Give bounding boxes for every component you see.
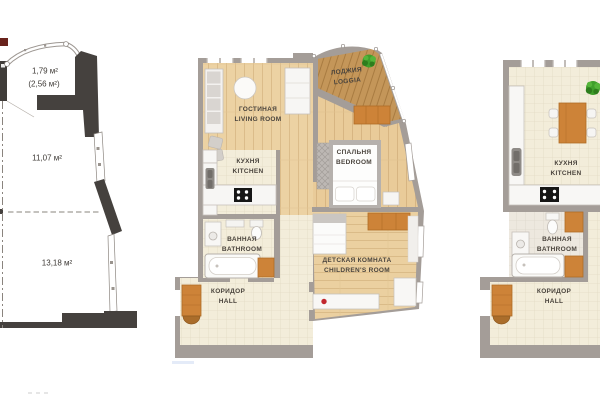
room-label-kitchen: КУХНЯ KITCHEN	[551, 159, 582, 179]
room-label-bedroom-ru: СПАЛЬНЯ	[336, 148, 372, 158]
room-label-children-en: CHILDREN'S ROOM	[322, 266, 391, 276]
room-label-children: ДЕТСКАЯ КОМНАТА CHILDREN'S ROOM	[322, 256, 391, 276]
room-label-kitchen-ru: КУХНЯ	[233, 157, 264, 167]
wall-bottom-left	[0, 322, 62, 328]
area-label-balcony-total: (2,56 м²)	[28, 80, 59, 89]
room-label-loggia: ЛОДЖИЯ LOGGIA	[330, 65, 363, 88]
kitchen-sink	[512, 148, 522, 176]
wall-chunk	[37, 51, 99, 137]
toilet	[546, 213, 559, 234]
bath-cabinet	[258, 258, 274, 277]
studio-plan-drawing	[480, 40, 600, 360]
kitchen-sink	[206, 168, 215, 189]
room-label-hall-en: HALL	[211, 297, 245, 307]
room-label-children-ru: ДЕТСКАЯ КОМНАТА	[322, 256, 391, 266]
children-desk	[313, 294, 379, 309]
bedroom-rug	[317, 143, 330, 189]
two-room-plan-drawing	[172, 40, 430, 360]
room-label-kitchen: КУХНЯ KITCHEN	[233, 157, 264, 177]
watermark-fragment	[28, 392, 52, 394]
room-label-living-en: LIVING ROOM	[235, 115, 282, 125]
room-label-hall-en: HALL	[537, 297, 571, 307]
room-label-kitchen-en: KITCHEN	[551, 169, 582, 179]
wall-bottom-right	[104, 311, 137, 328]
room-label-bathroom-en: BATHROOM	[222, 245, 262, 255]
room-label-bathroom: ВАННАЯ BATHROOM	[222, 235, 262, 255]
dining-table	[559, 103, 586, 143]
room-label-living-ru: ГОСТИНАЯ	[235, 105, 282, 115]
children-dresser	[394, 278, 416, 306]
studio-plan: КУХНЯ KITCHEN ВАННАЯ BATHROOM КОРИДОР HA…	[480, 40, 600, 360]
hall-wardrobe	[492, 285, 512, 324]
washing-machine	[205, 222, 221, 246]
room-label-bathroom: ВАННАЯ BATHROOM	[537, 235, 577, 255]
wall-pier-top	[293, 53, 313, 59]
room-label-hall: КОРИДОР HALL	[537, 287, 571, 307]
bath-cabinet	[565, 256, 583, 277]
cooktop	[540, 187, 559, 202]
room-label-bathroom-en: BATHROOM	[537, 245, 577, 255]
window-sill	[408, 216, 418, 262]
area-label-room-upper: 11,07 м²	[32, 154, 62, 163]
plant-icon	[586, 81, 600, 95]
sofa	[205, 69, 223, 133]
room-label-bedroom: СПАЛЬНЯ BEDROOM	[336, 148, 372, 168]
nightstand	[383, 192, 399, 205]
watermark-fragment	[172, 361, 194, 364]
console-cabinet	[285, 68, 310, 114]
room-label-bathroom-ru: ВАННАЯ	[537, 235, 577, 245]
floor-plans-image: 1,79 м² (2,56 м²) 11,07 м² 13,18 м²	[0, 0, 600, 400]
area-label-balcony: 1,79 м²	[32, 67, 58, 76]
balcony-glazing	[5, 42, 84, 67]
round-table	[234, 77, 256, 99]
washing-machine	[512, 232, 529, 256]
edge-fragment	[0, 38, 8, 46]
outline-plan: 1,79 м² (2,56 м²) 11,07 м² 13,18 м²	[0, 35, 140, 330]
outline-plan-drawing	[0, 35, 140, 330]
window-strip-lower	[108, 234, 117, 312]
room-label-bedroom-en: BEDROOM	[336, 158, 372, 168]
bath-shelf	[226, 220, 244, 227]
hall-wardrobe	[182, 285, 201, 324]
fridge	[203, 150, 217, 163]
window-strip-upper	[94, 132, 105, 183]
room-label-hall: КОРИДОР HALL	[211, 287, 245, 307]
room-label-kitchen-en: KITCHEN	[233, 167, 264, 177]
room-label-kitchen-ru: КУХНЯ	[551, 159, 582, 169]
room-label-bathroom-ru: ВАННАЯ	[222, 235, 262, 245]
children-bed	[313, 214, 346, 254]
wall-bottom-mid	[62, 313, 106, 328]
plant-icon	[362, 55, 376, 68]
room-label-hall-ru: КОРИДОР	[211, 287, 245, 297]
area-label-room-lower: 13,18 м²	[42, 259, 72, 268]
wall-angled	[94, 179, 122, 235]
room-label-living: ГОСТИНАЯ LIVING ROOM	[235, 105, 282, 125]
room-label-hall-ru: КОРИДОР	[537, 287, 571, 297]
bathtub	[205, 254, 260, 278]
desk-chair-dot	[321, 299, 326, 304]
bedroom-wardrobe	[354, 106, 390, 124]
bath-cabinet	[565, 212, 583, 232]
two-room-plan: ГОСТИНАЯ LIVING ROOM ЛОДЖИЯ LOGGIA КУХНЯ…	[172, 40, 430, 360]
children-wardrobe	[368, 213, 410, 230]
bathtub	[512, 254, 564, 277]
cooktop	[234, 188, 252, 202]
